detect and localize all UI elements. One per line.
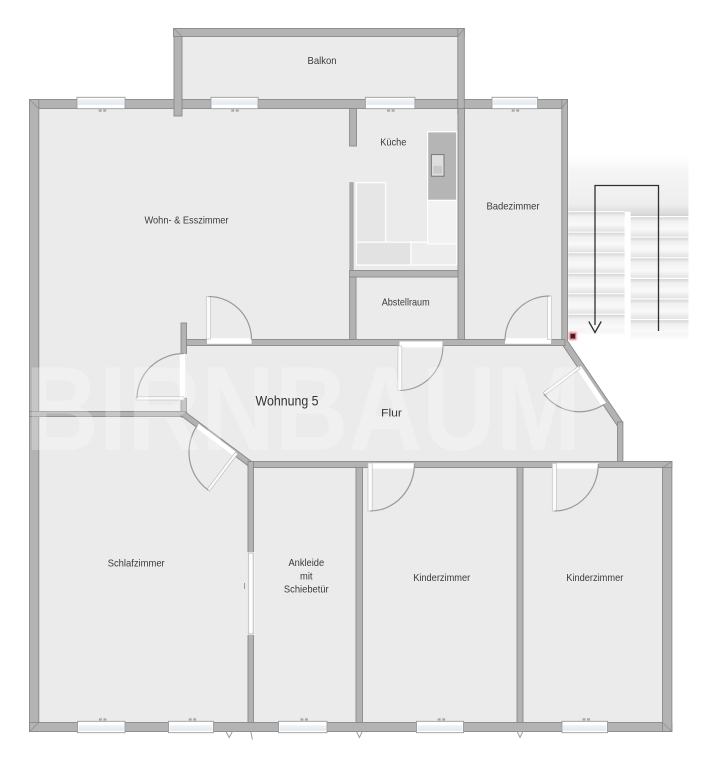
svg-text:Badezimmer: Badezimmer: [487, 202, 541, 213]
svg-text:Ankleide: Ankleide: [288, 558, 324, 569]
svg-text:Kinderzimmer: Kinderzimmer: [566, 573, 624, 584]
svg-text:Schiebetür: Schiebetür: [284, 584, 329, 595]
svg-text:Küche: Küche: [380, 138, 406, 149]
svg-text:Balkon: Balkon: [308, 56, 337, 67]
svg-text:Wohnung 5: Wohnung 5: [256, 393, 319, 409]
svg-text:BIRNBAUM: BIRNBAUM: [25, 342, 581, 476]
svg-text:Schlafzimmer: Schlafzimmer: [108, 558, 166, 569]
svg-text:mit: mit: [300, 571, 313, 582]
svg-text:Kinderzimmer: Kinderzimmer: [413, 573, 471, 584]
svg-text:Wohn- & Esszimmer: Wohn- & Esszimmer: [145, 215, 230, 226]
svg-text:Abstellraum: Abstellraum: [382, 298, 430, 309]
svg-text:Flur: Flur: [381, 408, 402, 420]
